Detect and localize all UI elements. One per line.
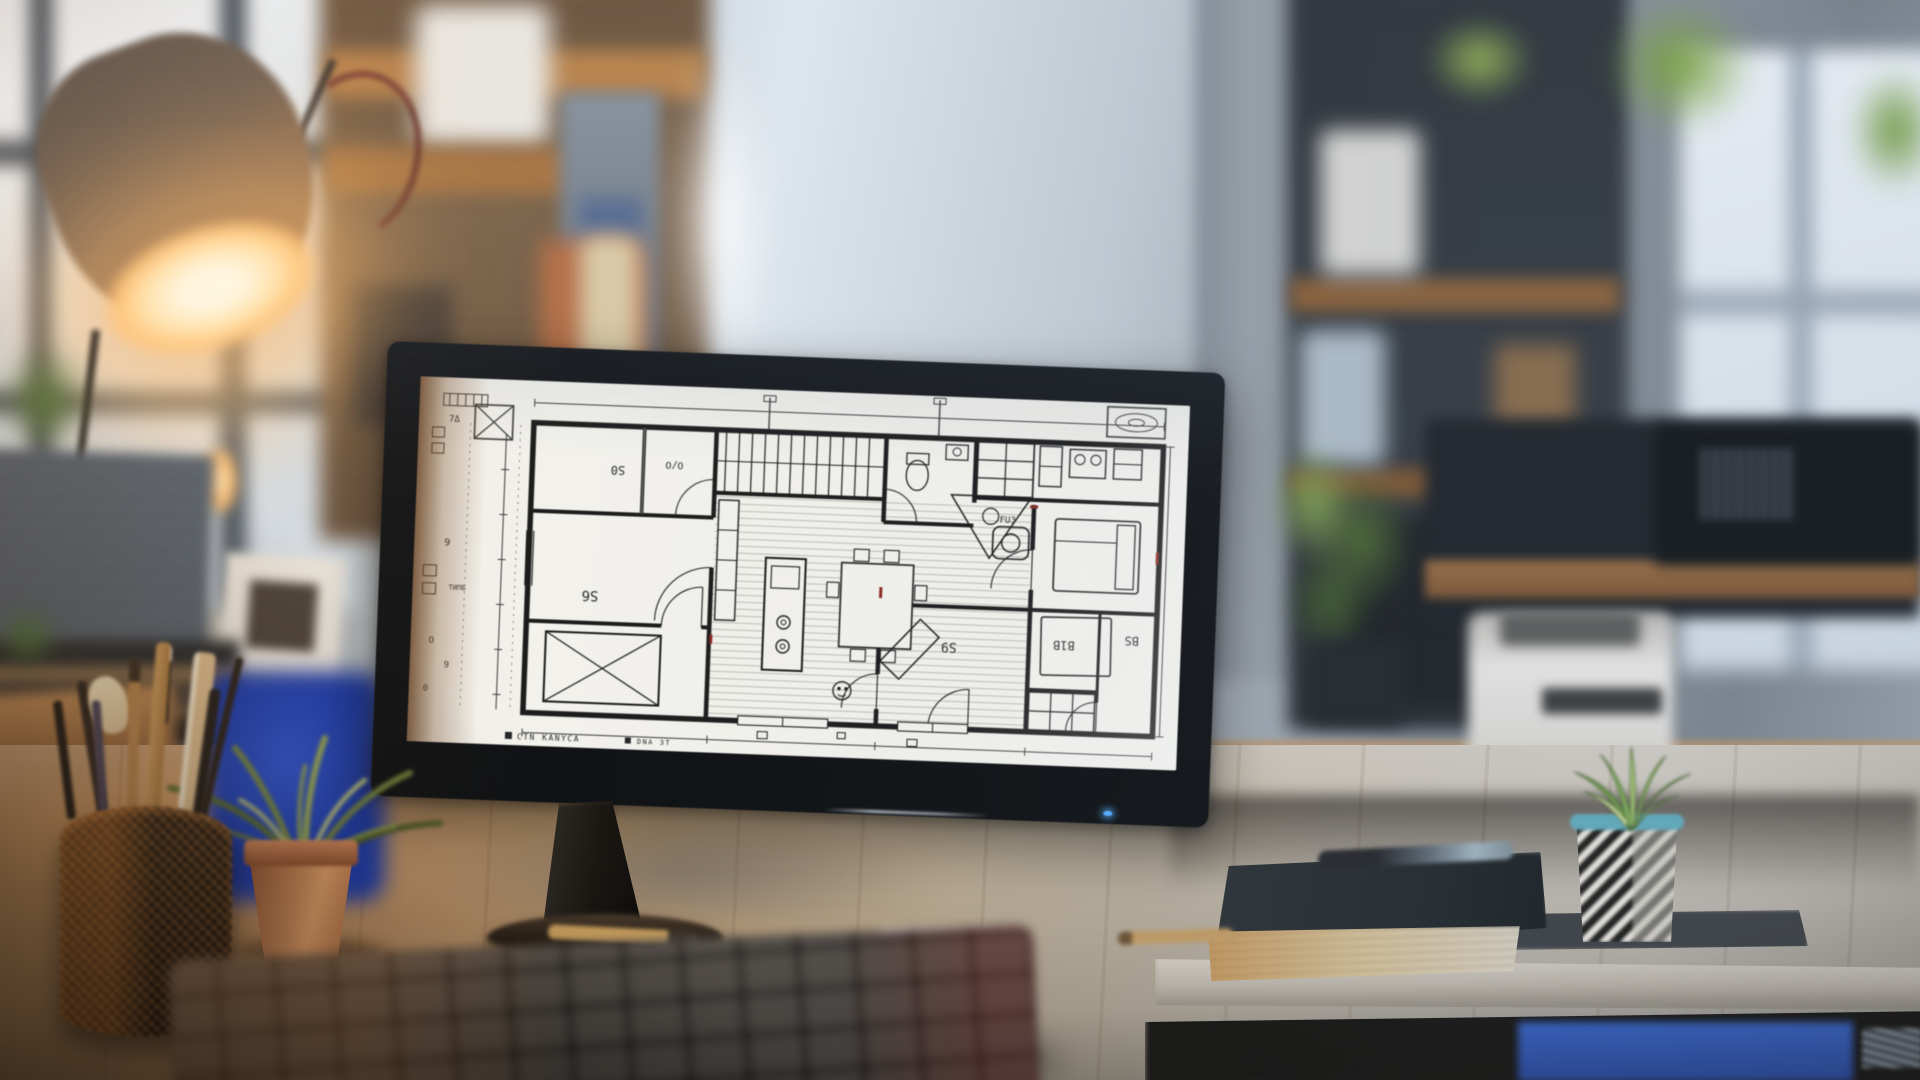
speaker-grille [1700,448,1795,520]
patterned-pot [1572,820,1682,942]
plant-pot-dark [1310,640,1405,725]
blue-drawer-unit [1518,1022,1853,1080]
printer-panel [1500,612,1640,646]
potted-plant-mid [1258,430,1418,675]
succulent-plant [1556,742,1706,837]
plant-bokeh [1575,0,1785,160]
shelf-board [1290,278,1620,312]
leaf-bokeh [0,590,75,685]
power-led [1103,811,1112,816]
wood-beam [1425,560,1920,598]
plant-bokeh [1830,40,1920,220]
terracotta-pot-rim [244,840,358,866]
workspace-photo: S0 O/O S6 S9 B1B BS FU3 9 7Δ ТИПБ O 9 0 [0,0,1920,1080]
shelf-bin [1320,130,1420,275]
monitor-screen: S0 O/O S6 S9 B1B BS FU3 9 7Δ ТИПБ O 9 0 [407,376,1190,770]
printer-tray [1542,688,1662,714]
monitor: S0 O/O S6 S9 B1B BS FU3 9 7Δ ТИПБ O 9 0 [371,341,1226,828]
metal-detail [1862,1028,1920,1068]
plant-bokeh [1405,0,1555,120]
screen-reflection [407,376,1190,770]
